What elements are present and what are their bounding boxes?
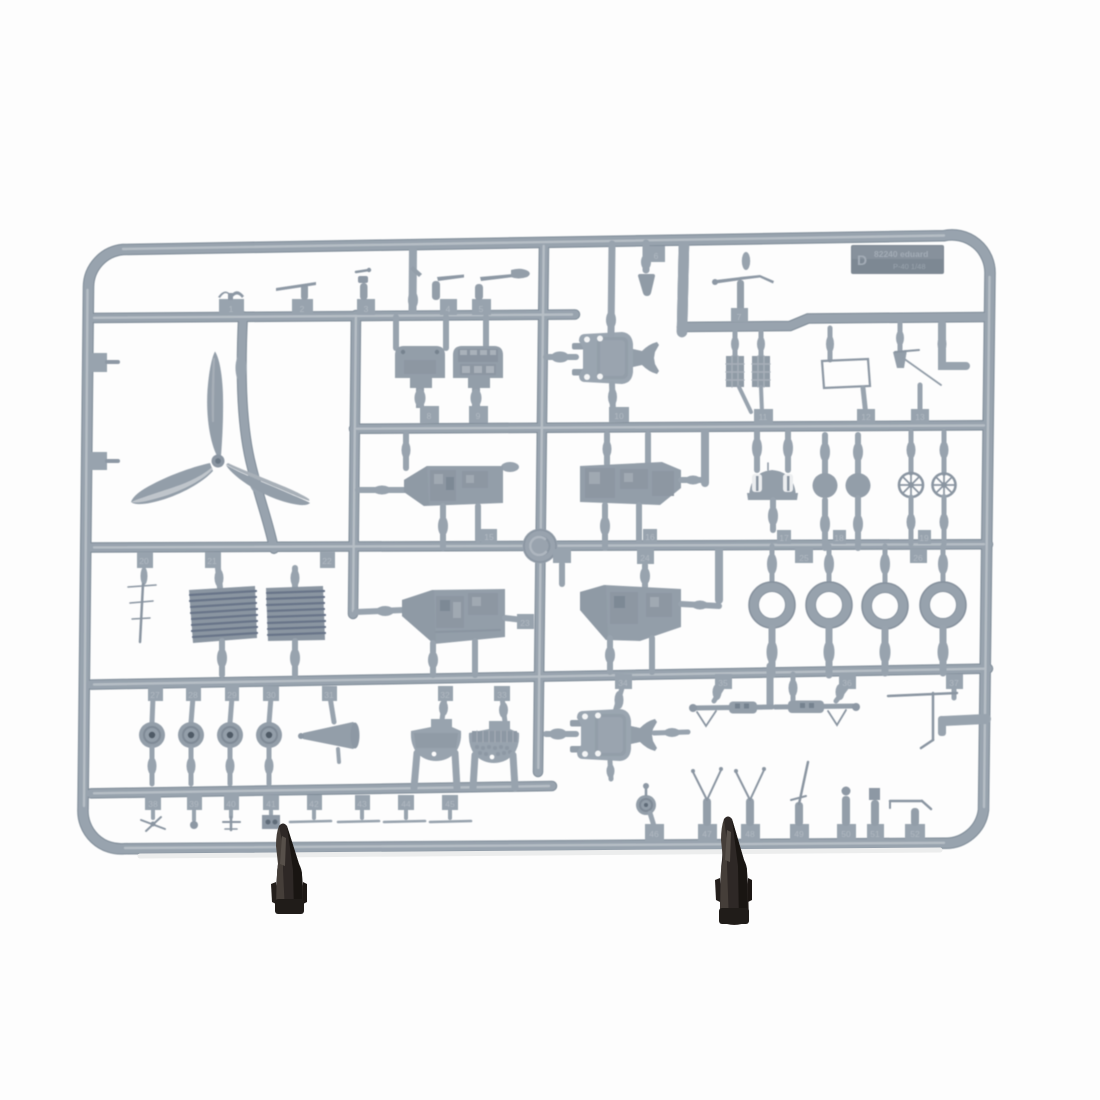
svg-text:46: 46 [649, 829, 659, 839]
svg-text:37: 37 [949, 678, 959, 688]
svg-text:8: 8 [427, 411, 432, 421]
svg-text:9: 9 [476, 411, 481, 421]
svg-text:25: 25 [799, 553, 809, 563]
svg-text:39: 39 [189, 799, 199, 809]
svg-text:11: 11 [759, 412, 768, 422]
svg-text:20: 20 [139, 556, 149, 566]
svg-text:49: 49 [794, 829, 804, 839]
svg-text:3: 3 [364, 304, 369, 314]
svg-text:52: 52 [910, 829, 920, 839]
svg-text:4: 4 [446, 304, 451, 314]
svg-text:28: 28 [188, 690, 198, 700]
svg-text:36: 36 [842, 678, 852, 688]
svg-text:19: 19 [919, 533, 929, 543]
svg-text:P-40 1/48: P-40 1/48 [893, 262, 926, 271]
svg-text:51: 51 [870, 829, 880, 839]
svg-text:15: 15 [484, 532, 494, 542]
svg-text:5: 5 [479, 304, 484, 314]
svg-text:41: 41 [266, 799, 276, 809]
svg-text:1: 1 [229, 304, 234, 314]
svg-text:2: 2 [300, 304, 305, 314]
svg-text:43: 43 [357, 799, 367, 809]
svg-text:6: 6 [654, 251, 659, 261]
svg-text:24: 24 [640, 553, 650, 563]
svg-text:48: 48 [745, 829, 755, 839]
svg-text:10: 10 [614, 411, 624, 421]
svg-text:40: 40 [226, 799, 236, 809]
svg-text:42: 42 [309, 799, 319, 809]
svg-text:26: 26 [913, 553, 923, 563]
svg-text:12: 12 [861, 412, 871, 422]
svg-text:30: 30 [266, 690, 276, 700]
svg-text:50: 50 [841, 829, 851, 839]
svg-text:45: 45 [445, 799, 455, 809]
svg-text:7: 7 [737, 312, 742, 322]
svg-text:27: 27 [150, 690, 160, 700]
svg-text:33: 33 [497, 690, 507, 700]
svg-text:21: 21 [207, 556, 217, 566]
svg-text:23: 23 [520, 618, 530, 628]
svg-text:16: 16 [645, 532, 655, 542]
svg-text:47: 47 [702, 829, 712, 839]
svg-text:32: 32 [440, 690, 450, 700]
svg-text:13: 13 [915, 412, 925, 422]
svg-text:44: 44 [401, 799, 411, 809]
svg-text:82240 eduard: 82240 eduard [874, 249, 928, 259]
svg-text:35: 35 [718, 678, 728, 688]
svg-text:34: 34 [618, 678, 628, 688]
svg-text:17: 17 [779, 533, 789, 543]
svg-text:22: 22 [322, 556, 332, 566]
svg-text:D: D [857, 252, 867, 268]
svg-text:29: 29 [227, 690, 237, 700]
svg-text:31: 31 [324, 690, 334, 700]
svg-text:38: 38 [148, 799, 158, 809]
svg-text:18: 18 [834, 533, 844, 543]
